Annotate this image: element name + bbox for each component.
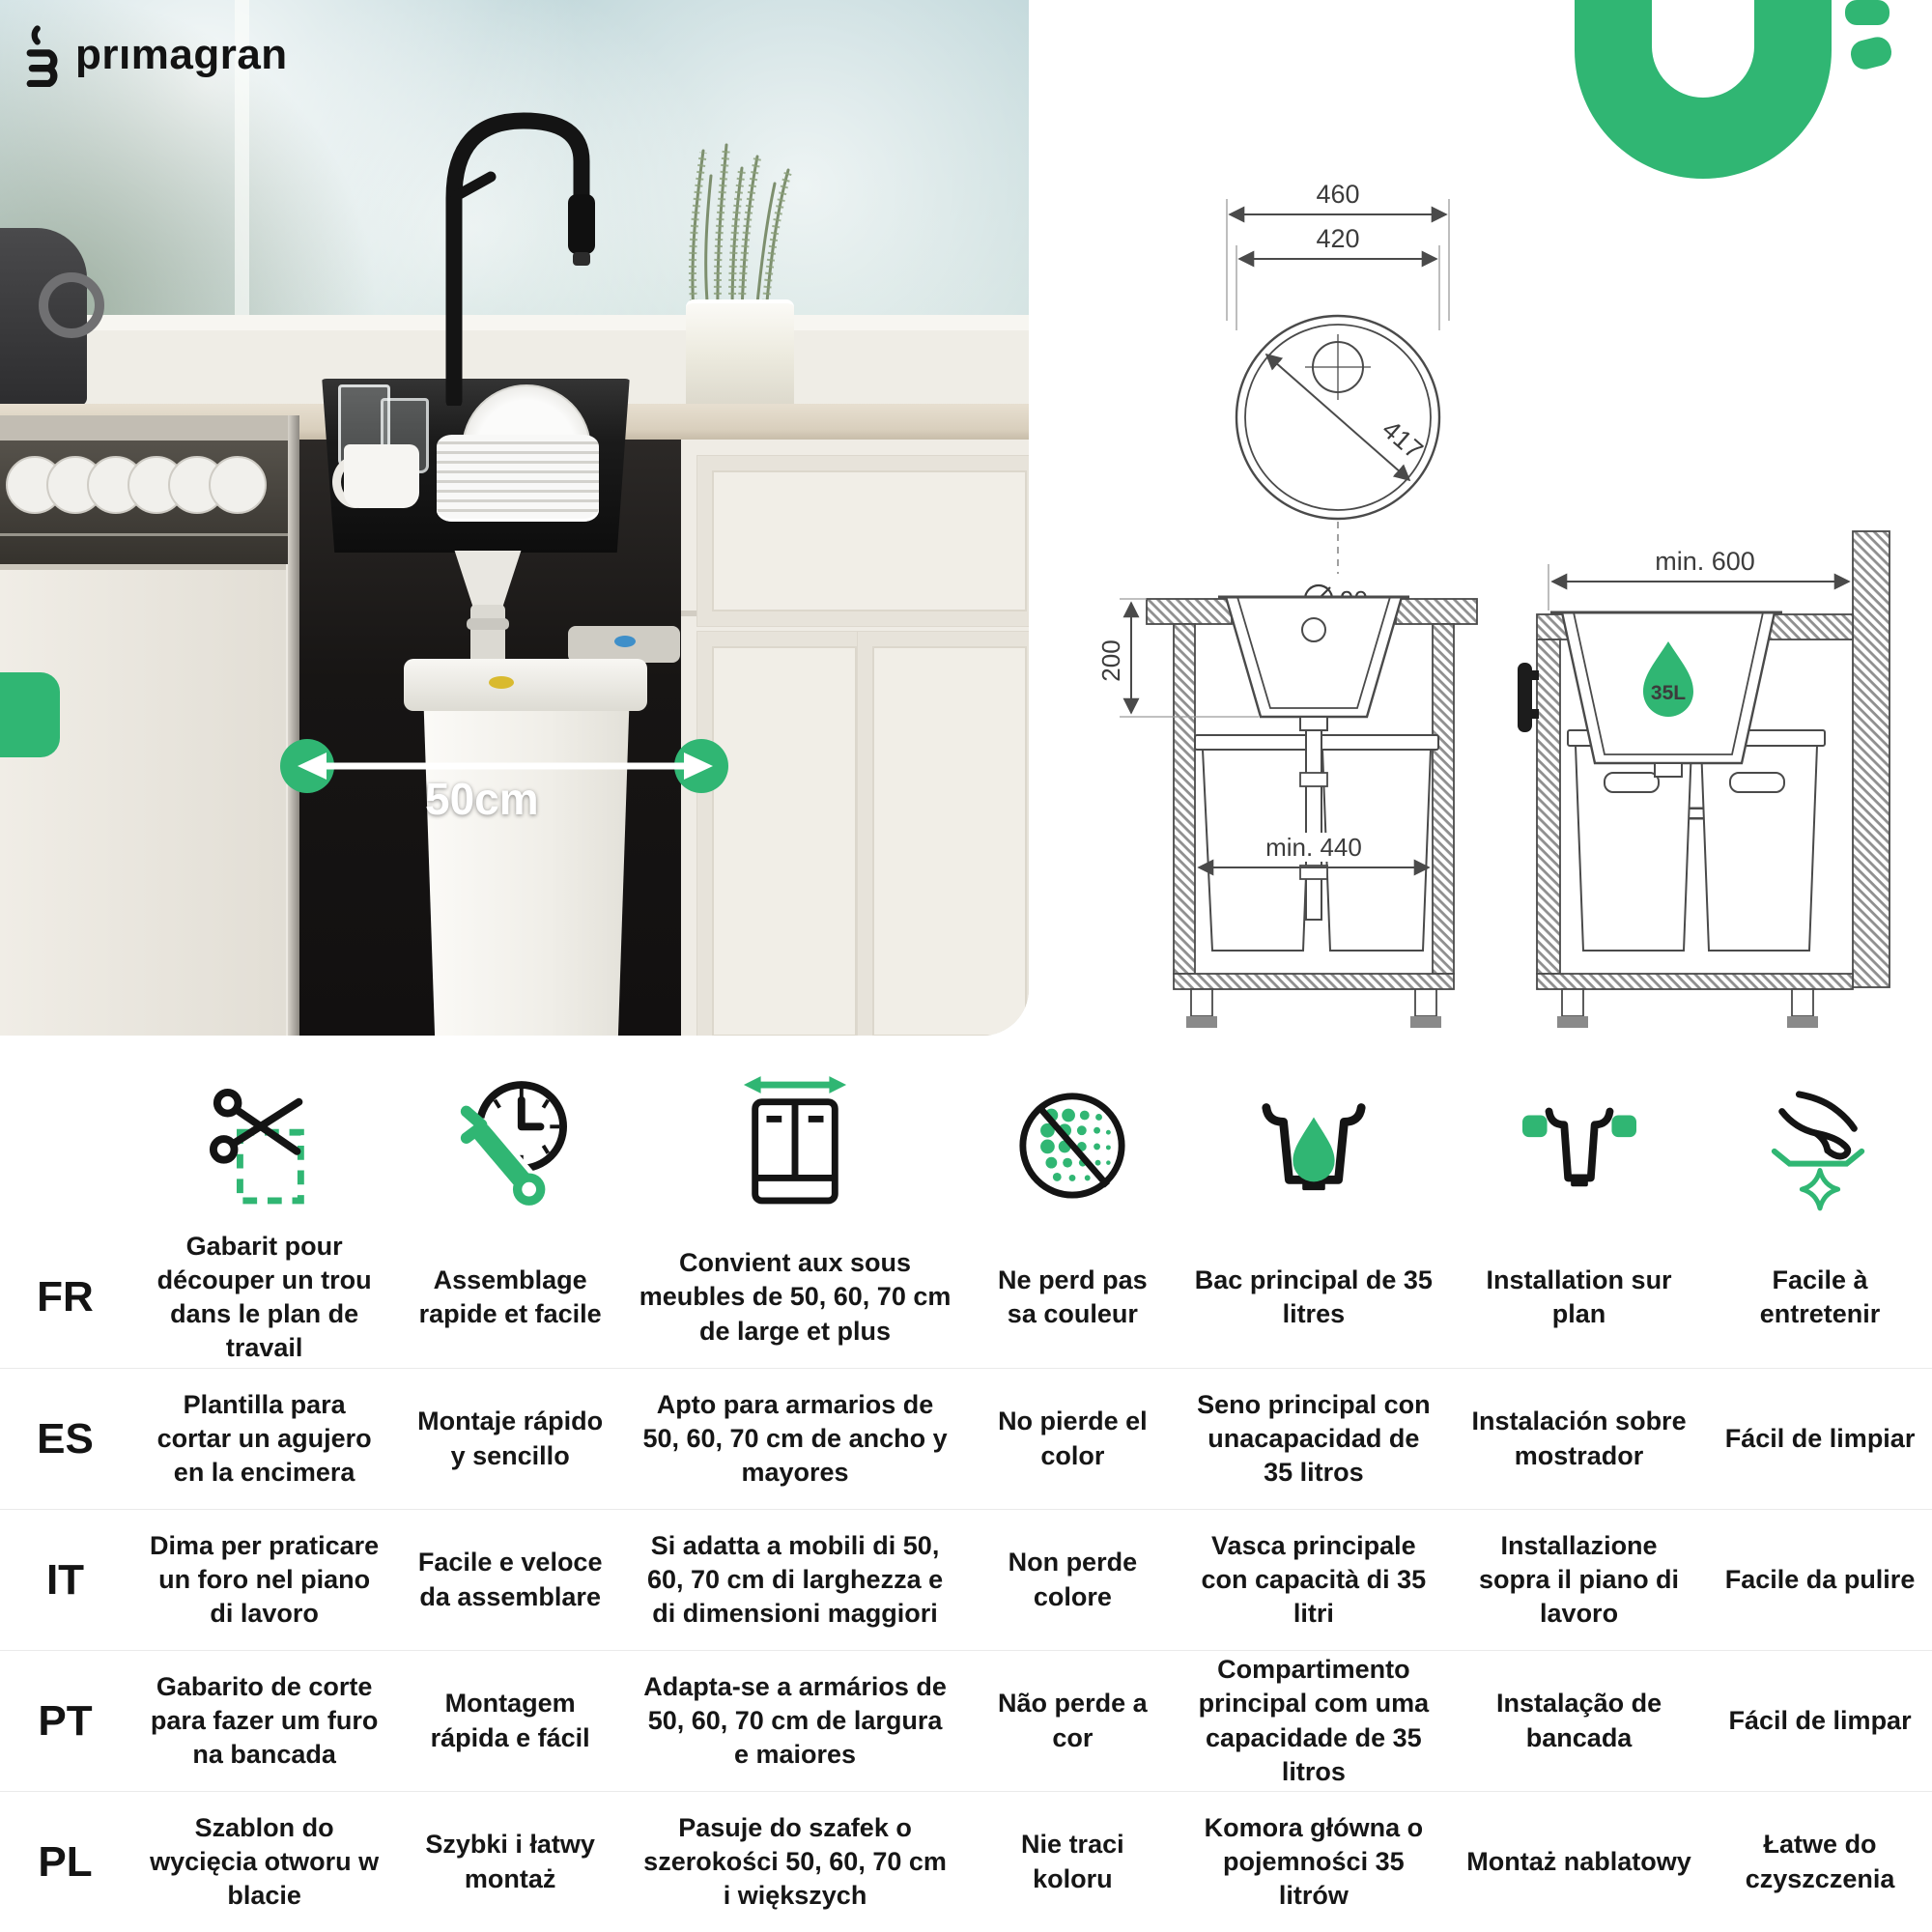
feature-cell: Dima per praticare un foro nel piano di … [130,1529,398,1631]
dim-inner-width: 420 [1316,224,1359,253]
pot-handle [39,272,104,338]
feature-icons-row [0,1036,1932,1227]
feature-cell: Komora główna o pojemności 35 litrów [1178,1811,1450,1913]
feature-cell: Facile e veloce da assemblare [398,1546,622,1613]
feature-cell: Vasca principale con capacità di 35 litr… [1178,1529,1450,1631]
faucet-icon [379,53,611,406]
quick-assembly-icon [398,1048,622,1214]
technical-panel: 460 420 417 90 [1029,0,1932,1036]
feature-row-pt: PT Gabarito de corte para fazer um furo … [0,1650,1932,1791]
kitchen-photo: 50cm prımagran [0,0,1029,1036]
dishwasher-rack [0,533,288,536]
feature-cell: Bac principal de 35 litres [1178,1264,1450,1331]
door-panel [697,632,871,1036]
lang-label: PL [0,1838,130,1887]
cabinet-edge [288,415,299,1036]
feature-cell: Plantilla para cortar un agujero en la e… [130,1388,398,1490]
features-table: FR Gabarit pour découper un trou dans le… [0,1036,1932,1932]
feature-cell: Ne perd pas sa couleur [968,1264,1178,1331]
feature-cell: Non perde colore [968,1546,1178,1613]
feature-cell: Nie traci koloru [968,1828,1178,1895]
easy-clean-icon [1708,1048,1932,1214]
top-view-drawing: 460 420 417 90 [1227,180,1449,614]
feature-cell: Adapta-se a armários de 50, 60, 70 cm de… [622,1670,968,1772]
lang-label: IT [0,1556,130,1605]
width-dimension-label: 50cm [425,773,539,825]
dim-cabinet-min-depth: min. 600 [1655,547,1755,576]
feature-cell: Assemblage rapide et facile [398,1264,622,1331]
dim-cabinet-min-width: min. 440 [1265,833,1362,862]
brand-mark-icon [25,23,62,87]
brand-u-icon [1575,0,1894,179]
bowl-capacity-icon [1178,1048,1450,1214]
cut-template-icon [130,1048,398,1214]
bin-blue-dot [614,636,636,647]
brand-logo: prımagran [25,23,288,87]
product-infographic: 50cm prımagran [0,0,1932,1932]
feature-row-it: IT Dima per praticare un foro nel piano … [0,1509,1932,1650]
feature-cell: Compartimento principal com uma capacida… [1178,1653,1450,1788]
bin-yellow-dot [489,676,514,689]
mug [344,444,419,508]
front-section-drawing: 200 min. 440 [1096,597,1477,1028]
feature-cell: Convient aux sous meubles de 50, 60, 70 … [622,1246,968,1348]
dim-outer-width: 460 [1316,180,1359,209]
capacity-badge: 35L [1651,682,1686,704]
plate-icon [209,456,267,514]
drawer-panel [697,456,1029,626]
feature-cell: No pierde el color [968,1405,1178,1472]
feature-cell: Seno principal con unacapacidad de 35 li… [1178,1388,1450,1490]
feature-cell: Installation sur plan [1450,1264,1708,1331]
dishwasher-door-edge [0,415,290,440]
feature-cell: Installazione sopra il piano di lavoro [1450,1529,1708,1631]
lang-label: PT [0,1697,130,1746]
feature-cell: Fácil de limpar [1708,1704,1932,1738]
feature-cell: Montaje rápido y sencillo [398,1405,622,1472]
lang-label: FR [0,1273,130,1321]
brand-name: prımagran [75,31,288,79]
feature-cell: Instalación sobre mostrador [1450,1405,1708,1472]
feature-cell: Não perde a cor [968,1687,1178,1754]
feature-cell: Fácil de limpiar [1708,1422,1932,1456]
pipe-coupling [467,618,509,630]
top-mount-icon [1450,1048,1708,1214]
waste-bin-lid [404,659,647,711]
feature-cell: Apto para armarios de 50, 60, 70 cm de a… [622,1388,968,1490]
feature-cell: Gabarito de corte para fazer um furo na … [130,1670,398,1772]
cabinet-width-icon [622,1048,968,1214]
feature-cell: Montagem rápida e fácil [398,1687,622,1754]
feature-cell: Szybki i łatwy montaż [398,1828,622,1895]
colorfast-icon [968,1048,1178,1214]
feature-cell: Łatwe do czyszczenia [1708,1828,1932,1895]
feature-cell: Montaż nablatowy [1450,1845,1708,1879]
feature-cell: Gabarit pour découper un trou dans le pl… [130,1230,398,1365]
side-section-drawing: 35L min. 600 [1518,531,1889,1028]
feature-cell: Facile da pulire [1708,1563,1932,1597]
dishwasher-open [0,440,288,564]
feature-cell: Instalação de bancada [1450,1687,1708,1754]
feature-cell: Facile à entretenir [1708,1264,1932,1331]
feature-cell: Szablon do wycięcia otworu w blacie [130,1811,398,1913]
lang-label: ES [0,1415,130,1463]
feature-row-fr: FR Gabarit pour découper un trou dans le… [0,1227,1932,1368]
feature-row-es: ES Plantilla para cortar un agujero en l… [0,1368,1932,1509]
plate-stack [437,435,599,522]
feature-cell: Pasuje do szafek o szerokości 50, 60, 70… [622,1811,968,1913]
feature-cell: Si adatta a mobili di 50, 60, 70 cm di l… [622,1529,968,1631]
dim-bowl-depth: 200 [1096,639,1125,681]
door-panel [858,632,1029,1036]
plant-icon [665,137,819,316]
dishwasher-door [0,564,286,1036]
green-accent-tab [0,672,60,757]
feature-row-pl: PL Szablon do wycięcia otworu w blacie S… [0,1791,1932,1932]
